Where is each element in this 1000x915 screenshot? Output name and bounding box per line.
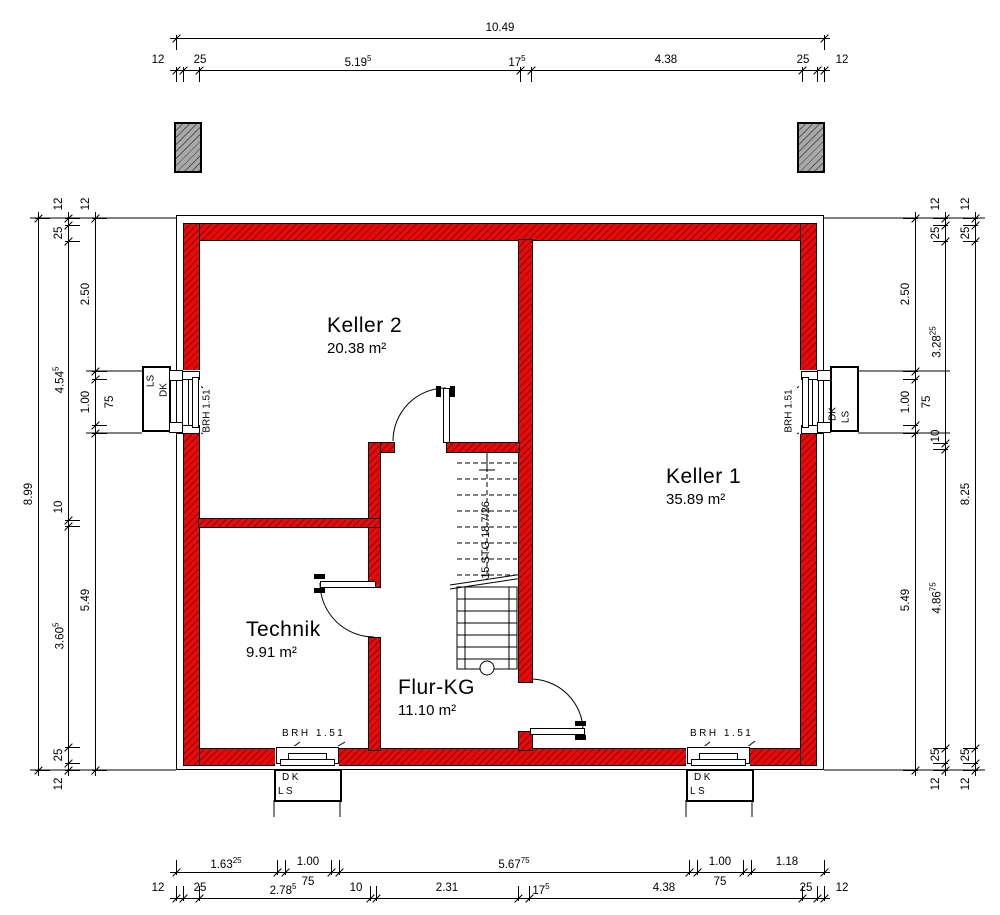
dim-label: 175: [509, 882, 573, 897]
dk-label: DK: [694, 772, 713, 783]
ls-label: LS: [146, 375, 157, 387]
wall-keller2-technik-divider: [198, 518, 381, 528]
room-label-keller2: Keller 2 20.38 m²: [327, 314, 402, 357]
dim-label: 3.2825: [929, 326, 944, 357]
dim-label: 1.00: [900, 391, 912, 413]
dim-extension-stub: [183, 67, 184, 82]
dim-sublabel: 75: [104, 396, 116, 409]
dim-extension-stub: [35, 218, 50, 219]
dim-extension-stub: [65, 241, 80, 242]
dim-extension-stub: [933, 218, 948, 219]
room-area: 35.89 m²: [666, 491, 741, 508]
dim-label: 8.25: [960, 483, 972, 505]
dim-extension-stub: [65, 218, 80, 219]
dim-label: 12: [960, 198, 972, 211]
dim-extension-stub: [963, 763, 978, 764]
floor-plan-canvas: Keller 2 20.38 m² Keller 1 35.89 m² Tech…: [0, 0, 1000, 915]
dim-label: 10: [930, 430, 942, 443]
dim-sublabel: 75: [921, 396, 933, 409]
dim-extension-stub: [933, 449, 948, 450]
room-name: Keller 2: [327, 314, 402, 338]
room-label-technik: Technik 9.91 m²: [246, 618, 321, 661]
dim-label: 4.38: [634, 54, 698, 66]
dim-label: 25: [168, 54, 232, 66]
dim-label: 25: [930, 227, 942, 240]
dim-label: 12: [930, 778, 942, 791]
dim-extension-stub: [933, 241, 948, 242]
brh-label-bottom-right: BRH 1.51: [690, 728, 753, 739]
brh-label-left: BRH 1.51: [202, 389, 213, 432]
dim-line: [170, 70, 830, 71]
dim-extension-stub: [963, 770, 978, 771]
window-glass: [182, 379, 189, 426]
room-area: 20.38 m²: [327, 340, 402, 357]
dim-label: 2.50: [900, 283, 912, 305]
dk-label: DK: [282, 772, 301, 783]
dim-extension-stub: [933, 763, 948, 764]
light-shaft-stub: [817, 422, 831, 433]
light-shaft-stub: [817, 370, 831, 381]
wall-technik-east-lower: [368, 637, 381, 751]
dim-extension-stub: [824, 860, 825, 875]
wall-interior-main-vertical: [518, 239, 533, 683]
dim-label: 25: [168, 882, 232, 894]
dim-label: 25: [53, 749, 65, 762]
door-leaf-flur: [530, 728, 585, 735]
dim-extension-stub: [35, 770, 50, 771]
wall-exterior-top: [183, 223, 817, 241]
dim-label: 12: [960, 778, 972, 791]
dim-label: 5.195: [326, 54, 390, 69]
room-label-flur-kg: Flur-KG 11.10 m²: [398, 676, 475, 719]
room-name: Technik: [246, 618, 321, 642]
dim-extension-stub: [903, 218, 918, 219]
dim-label: 25: [960, 749, 972, 762]
room-name: Keller 1: [666, 465, 741, 489]
dim-label: 1.00: [688, 856, 752, 868]
dim-label: 1.00: [80, 391, 92, 413]
wall-exterior-left: [183, 223, 200, 766]
dim-label: 12: [810, 882, 874, 894]
stair-label: 15 STG 18.7/26: [480, 501, 492, 579]
door-leaf-technik: [320, 581, 376, 588]
door-handle-icon: [314, 588, 325, 593]
dim-label: 25: [930, 749, 942, 762]
wall-technik-east-upper: [368, 442, 381, 588]
dim-extension-stub: [65, 770, 80, 771]
dim-extension-stub: [963, 241, 978, 242]
dim-extension-stub: [65, 526, 80, 527]
dim-label: 12: [53, 778, 65, 791]
dim-label: 10: [324, 882, 388, 894]
dim-line: [170, 38, 830, 39]
door-handle-icon: [450, 386, 455, 397]
dim-extension-stub: [531, 67, 532, 82]
dim-extension-stub: [92, 770, 107, 771]
dim-sublabel: 75: [688, 876, 752, 888]
dim-label: 25: [960, 227, 972, 240]
dim-extension-stub: [520, 67, 521, 82]
dim-extension-stub: [824, 67, 825, 82]
dim-extension-stub: [176, 67, 177, 82]
dim-extension-stub: [65, 763, 80, 764]
dim-label: 5.49: [80, 589, 92, 611]
wall-exterior-right: [800, 223, 817, 766]
window-sill: [802, 377, 809, 428]
dim-extension-stub: [817, 67, 818, 82]
dim-line: [915, 212, 916, 776]
dim-label: 5.49: [900, 589, 912, 611]
brh-label-right: BRH 1.51: [784, 389, 795, 432]
dim-extension-stub: [933, 770, 948, 771]
dim-extension-stub: [92, 425, 107, 426]
dk-label: DK: [828, 407, 839, 421]
dim-extension-stub: [824, 35, 825, 50]
window-glass: [812, 379, 819, 426]
dim-extension-stub: [92, 218, 107, 219]
window-sill: [280, 759, 335, 766]
shaft-stub-line: [274, 800, 752, 817]
dim-line: [68, 212, 69, 776]
dim-line: [945, 212, 946, 776]
room-label-keller1: Keller 1 35.89 m²: [666, 465, 741, 508]
dim-extension-stub: [802, 67, 803, 82]
dim-extension-stub: [903, 433, 918, 434]
dim-extension-stub: [65, 225, 80, 226]
window-sill: [192, 377, 199, 428]
dim-label: 4.545: [52, 367, 67, 394]
ls-label: LS: [278, 786, 295, 797]
dim-label: 2.31: [415, 882, 479, 894]
dim-label: 10: [53, 501, 65, 514]
dim-extension-stub: [903, 770, 918, 771]
dim-label: 3.605: [52, 623, 67, 650]
door-leaf-keller2: [443, 388, 450, 443]
dim-label: 5.6775: [482, 856, 546, 871]
room-name: Flur-KG: [398, 676, 475, 700]
dim-label: 12: [80, 198, 92, 211]
dim-line: [975, 212, 976, 776]
ls-label: LS: [690, 786, 707, 797]
dim-label: 25: [53, 227, 65, 240]
brh-label-bottom-left: BRH 1.51: [282, 728, 345, 739]
dim-label: 12: [810, 54, 874, 66]
dim-extension-stub: [65, 520, 80, 521]
dim-label: 1.6325: [194, 856, 258, 871]
ls-label: LS: [841, 411, 852, 423]
dim-label: 175: [485, 54, 549, 69]
dim-extension-stub: [176, 35, 177, 50]
dim-line: [170, 872, 830, 873]
dim-extension-stub: [92, 371, 107, 372]
dim-label: 4.8675: [929, 582, 944, 613]
light-shaft-stub: [169, 370, 183, 381]
dim-extension-stub: [176, 860, 177, 875]
dim-line: [38, 212, 39, 776]
chimney-pier-left: [174, 122, 202, 173]
dim-label: 2.50: [80, 283, 92, 305]
dim-extension-stub: [92, 433, 107, 434]
dim-extension-stub: [65, 747, 80, 748]
dim-extension-stub: [903, 371, 918, 372]
light-shaft-stub: [169, 422, 183, 433]
window-sill: [691, 759, 746, 766]
room-area: 9.91 m²: [246, 644, 321, 661]
room-area: 11.10 m²: [398, 702, 475, 719]
dim-label: 1.00: [276, 856, 340, 868]
dim-label: 12: [930, 198, 942, 211]
door-handle-icon: [575, 721, 586, 726]
dim-label: 1.18: [755, 856, 819, 868]
dk-label: DK: [159, 383, 170, 397]
dim-label: 2.785: [251, 882, 315, 897]
chimney-pier-right: [797, 122, 825, 173]
dim-extension-stub: [903, 379, 918, 380]
door-handle-icon: [436, 386, 441, 397]
dim-label: 8.99: [23, 483, 35, 505]
door-handle-icon: [314, 574, 325, 579]
dim-line: [95, 212, 96, 776]
dim-extension-stub: [963, 218, 978, 219]
door-handle-icon: [575, 735, 586, 740]
dim-extension-stub: [92, 379, 107, 380]
wall-stairhall-north-right: [446, 442, 520, 453]
dim-label: 4.38: [632, 882, 696, 894]
dim-extension-stub: [199, 67, 200, 82]
dim-extension-stub: [903, 425, 918, 426]
dim-label: 12: [53, 198, 65, 211]
dim-label: 10.49: [468, 22, 532, 34]
dim-line: [170, 898, 830, 899]
dim-extension-stub: [933, 443, 948, 444]
